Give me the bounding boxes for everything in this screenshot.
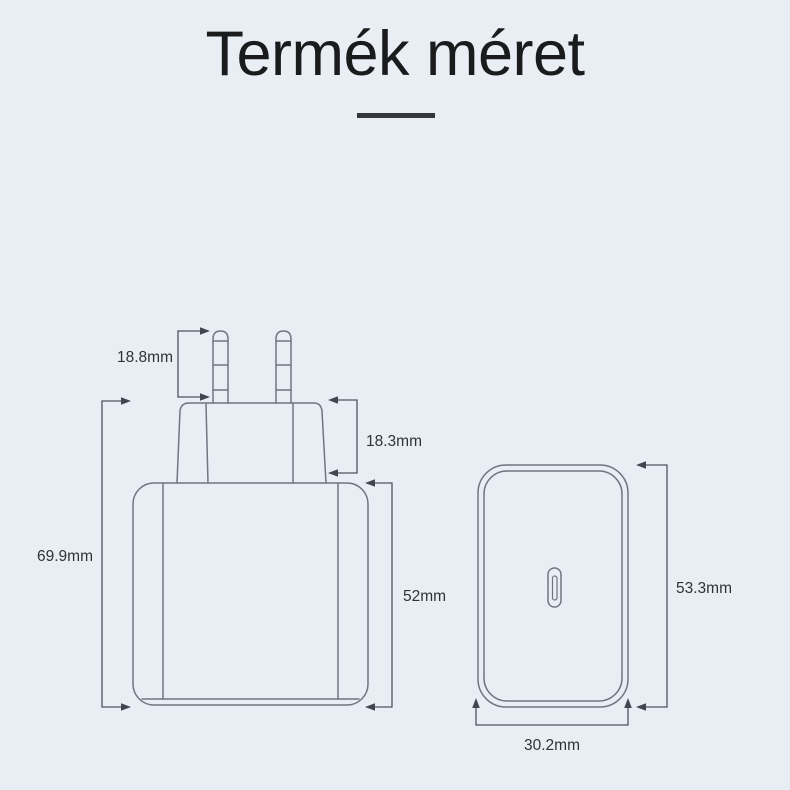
dimension-pin-height: 18.8mm bbox=[117, 327, 210, 401]
product-size-page: Termék méret bbox=[0, 0, 790, 790]
arrow-up-icon bbox=[624, 698, 632, 708]
dimension-plug-base-height: 18.3mm bbox=[328, 396, 422, 477]
charger-front-view: 53.3mm 30.2mm bbox=[472, 461, 732, 754]
arrow-left-icon bbox=[365, 479, 375, 487]
dimension-total-height: 69.9mm bbox=[37, 397, 131, 711]
arrow-up-icon bbox=[472, 698, 480, 708]
arrow-right-icon bbox=[121, 397, 131, 405]
charger-side-view: 18.8mm 69.9mm 18.3mm 52mm bbox=[37, 327, 446, 711]
charger-body-outline bbox=[133, 483, 368, 705]
pin-height-label: 18.8mm bbox=[117, 349, 173, 366]
front-width-label: 30.2mm bbox=[524, 737, 580, 754]
dimension-body-height: 52mm bbox=[365, 479, 446, 711]
dimension-diagram: 18.8mm 69.9mm 18.3mm 52mm bbox=[0, 0, 790, 790]
front-height-label: 53.3mm bbox=[676, 580, 732, 597]
usb-c-port-icon bbox=[548, 568, 561, 607]
arrow-left-icon bbox=[328, 469, 338, 477]
arrow-right-icon bbox=[121, 703, 131, 711]
plug-pin-right-icon bbox=[276, 331, 291, 403]
plug-base-outline bbox=[177, 403, 326, 483]
body-height-label: 52mm bbox=[403, 588, 446, 605]
arrow-right-icon bbox=[200, 327, 210, 335]
dimension-front-height: 53.3mm bbox=[636, 461, 732, 711]
arrow-left-icon bbox=[636, 703, 646, 711]
plug-pin-left-icon bbox=[213, 331, 228, 403]
arrow-right-icon bbox=[200, 393, 210, 401]
total-height-label: 69.9mm bbox=[37, 548, 93, 565]
arrow-left-icon bbox=[328, 396, 338, 404]
arrow-left-icon bbox=[365, 703, 375, 711]
plug-base-height-label: 18.3mm bbox=[366, 433, 422, 450]
arrow-left-icon bbox=[636, 461, 646, 469]
